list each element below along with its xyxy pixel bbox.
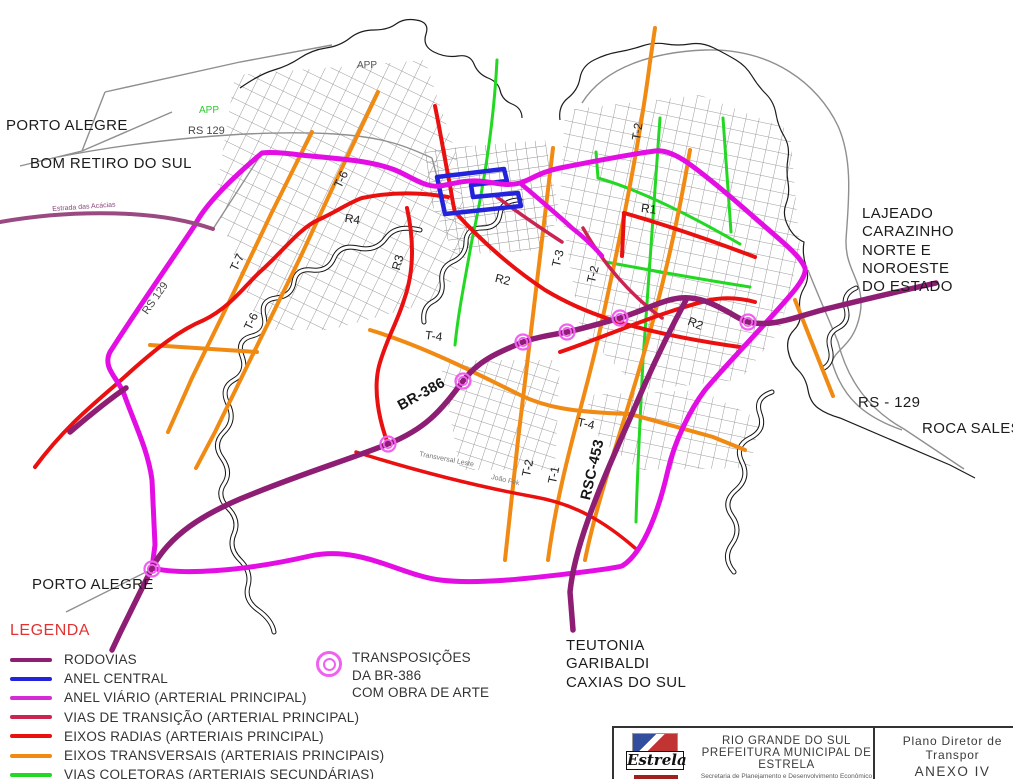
label-porto-alegre-bottom: PORTO ALEGRE <box>32 576 154 593</box>
label-app-gray: APP <box>357 60 377 71</box>
legend-item-anel-viario: ANEL VIÁRIO (ARTERIAL PRINCIPAL) <box>10 688 384 707</box>
label-porto-alegre-top: PORTO ALEGRE <box>6 117 128 134</box>
title-block-right: Plano Diretor de Transpor ANEXO IV REDE … <box>873 728 1013 779</box>
legend-swatch-vias-transicao <box>10 715 52 719</box>
label-road-t2c: T-2 <box>629 122 646 141</box>
estrela-logo-text: Estrela <box>626 751 684 770</box>
label-rs129-top: RS 129 <box>188 125 225 137</box>
legend-item-eixos-transversais: EIXOS TRANSVERSAIS (ARTERIAIS PRINCIPAIS… <box>10 746 384 765</box>
legend-swatch-eixos-transversais <box>10 754 52 758</box>
legend-item-vias-transicao: VIAS DE TRANSIÇÃO (ARTERIAL PRINCIPAL) <box>10 708 384 727</box>
label-bom-retiro: BOM RETIRO DO SUL <box>30 155 192 172</box>
label-teutonia-block: TEUTONIA GARIBALDI CAXIAS DO SUL <box>566 637 686 692</box>
legend-item-eixos-radiais: EIXOS RADIAS (ARTERIAIS PRINCIPAL) <box>10 727 384 746</box>
label-roca-sales: ROCA SALES <box>922 420 1013 437</box>
legend-swatch-anel-viario <box>10 696 52 700</box>
label-rs129-right: RS - 129 <box>858 394 920 411</box>
municipality-name: PREFEITURA MUNICIPAL DE ESTRELA <box>700 747 873 771</box>
state-name: RIO GRANDE DO SUL <box>700 735 873 747</box>
legend-item-vias-coletoras: VIAS COLETORAS (ARTERIAIS SECUNDÁRIAS) <box>10 765 384 779</box>
secretariat-name: Secretaria de Planejamento e Desenvolvim… <box>700 773 873 779</box>
label-road-r1: R1 <box>640 201 657 217</box>
title-block: Estrela RIO GRANDE DO SUL PREFEITURA MUN… <box>612 726 1013 779</box>
legend-swatch-anel-central <box>10 677 52 681</box>
transposition-symbol-icon <box>316 651 342 677</box>
legend-swatch-vias-coletoras <box>10 773 52 777</box>
logo-red-bar <box>634 775 678 779</box>
label-road-t4: T-4 <box>424 328 443 344</box>
legend: LEGENDA RODOVIAS ANEL CENTRAL ANEL VIÁRI… <box>10 622 384 779</box>
label-road-r4: R4 <box>344 211 361 227</box>
map-page: PORTO ALEGRE BOM RETIRO DO SUL LAJEADO C… <box>0 0 1013 779</box>
label-lajeado-block: LAJEADO CARAZINHO NORTE E NOROESTE DO ES… <box>862 205 1013 296</box>
transposition-legend-text: TRANSPOSIÇÕES DA BR-386 COM OBRA DE ARTE <box>352 649 489 702</box>
legend-swatch-rodovias <box>10 658 52 662</box>
plan-title: Plano Diretor de Transpor <box>875 734 1013 762</box>
estrela-flag-logo-icon <box>632 733 678 752</box>
legend-title: LEGENDA <box>10 622 384 640</box>
title-block-left: Estrela RIO GRANDE DO SUL PREFEITURA MUN… <box>614 728 873 779</box>
label-app-green: APP <box>199 105 219 116</box>
street-grid-blocks <box>215 60 800 470</box>
legend-swatch-eixos-radiais <box>10 734 52 738</box>
road-estrada-acacias <box>0 213 213 229</box>
annex-label: ANEXO IV <box>875 764 1013 779</box>
title-block-center-text: RIO GRANDE DO SUL PREFEITURA MUNICIPAL D… <box>700 728 873 779</box>
